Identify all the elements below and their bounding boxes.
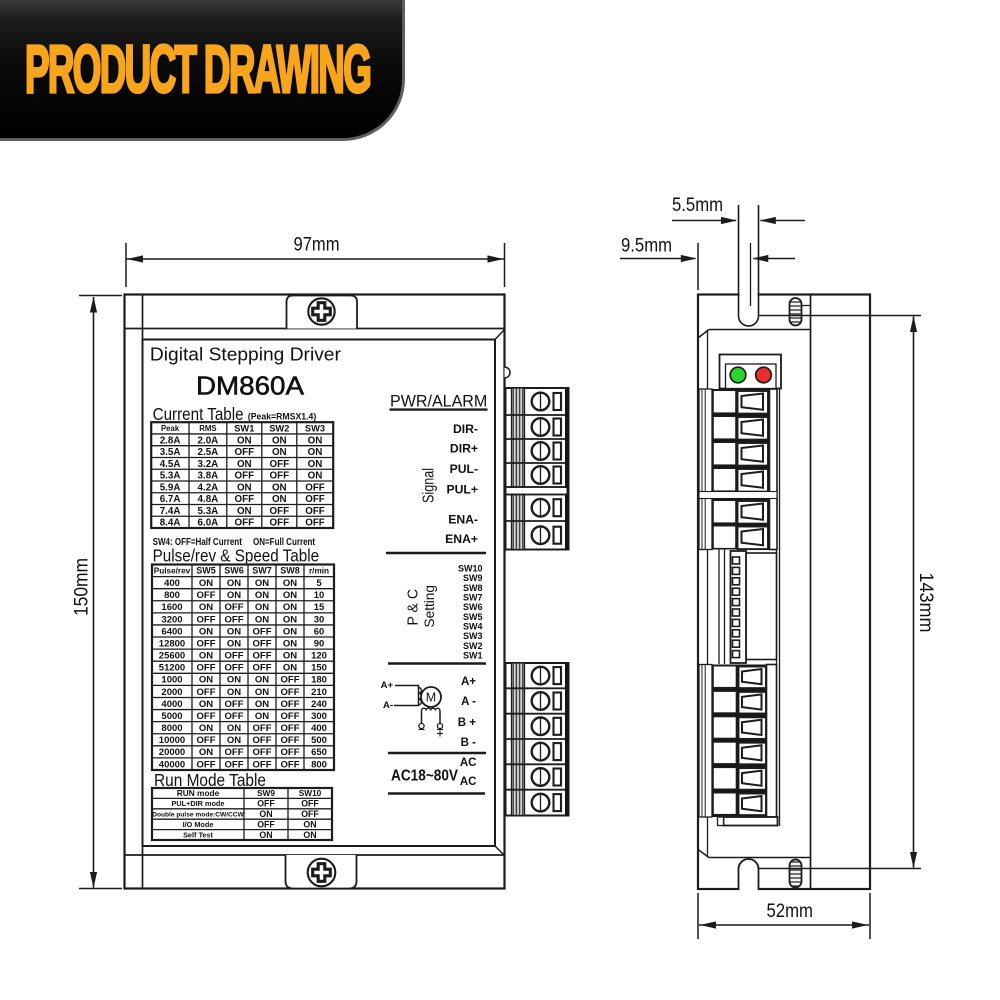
svg-text:143mm: 143mm: [915, 573, 936, 633]
svg-text:OFF: OFF: [197, 687, 216, 698]
svg-text:OFF: OFF: [305, 482, 325, 493]
svg-text:ON: ON: [227, 723, 241, 734]
svg-text:SW6: SW6: [224, 566, 244, 576]
svg-text:SW7: SW7: [252, 566, 272, 576]
svg-text:OFF: OFF: [281, 687, 300, 698]
svg-text:ON: ON: [255, 614, 269, 625]
svg-text:3.2A: 3.2A: [198, 459, 219, 470]
svg-text:Peak: Peak: [161, 424, 180, 433]
svg-text:OFF: OFF: [225, 651, 244, 662]
svg-text:Current Table: Current Table: [153, 404, 244, 424]
svg-text:Self Test: Self Test: [183, 830, 213, 839]
svg-text:SW1: SW1: [234, 423, 254, 433]
svg-text:ON: ON: [237, 506, 252, 517]
svg-text:DM860A: DM860A: [196, 370, 305, 400]
svg-text:ON: ON: [283, 602, 297, 613]
svg-text:DIR-: DIR-: [453, 422, 478, 436]
svg-text:SW10: SW10: [458, 564, 483, 574]
svg-text:ON: ON: [303, 820, 316, 830]
svg-text:OFF: OFF: [225, 711, 244, 722]
svg-text:ON: ON: [308, 459, 323, 470]
svg-text:SW8: SW8: [280, 566, 300, 576]
svg-text:OFF: OFF: [301, 809, 319, 819]
svg-text:PUL-: PUL-: [450, 462, 478, 476]
svg-text:SW5: SW5: [463, 612, 483, 622]
svg-text:8.4A: 8.4A: [160, 518, 181, 529]
svg-text:500: 500: [311, 735, 327, 746]
svg-text:ON: ON: [199, 578, 213, 589]
svg-text:OFF: OFF: [197, 663, 216, 674]
svg-text:2000: 2000: [161, 687, 182, 698]
svg-text:OFF: OFF: [305, 506, 325, 517]
svg-text:B +: B +: [458, 717, 477, 729]
svg-text:PUL+DIR mode: PUL+DIR mode: [172, 799, 225, 808]
svg-text:30: 30: [314, 614, 325, 625]
svg-text:800: 800: [311, 759, 327, 770]
svg-text:97mm: 97mm: [294, 235, 340, 256]
svg-text:OFF: OFF: [197, 638, 216, 649]
svg-text:ON: ON: [227, 638, 241, 649]
svg-text:650: 650: [311, 747, 327, 758]
svg-text:ON: ON: [308, 435, 323, 446]
svg-text:ON: ON: [237, 459, 252, 470]
svg-text:OFF: OFF: [281, 759, 300, 770]
svg-text:ON: ON: [283, 638, 297, 649]
svg-text:6.7A: 6.7A: [160, 494, 181, 505]
svg-text:OFF: OFF: [281, 735, 300, 746]
svg-text:ON: ON: [227, 735, 241, 746]
svg-text:5.5mm: 5.5mm: [672, 195, 723, 216]
svg-text:SW10: SW10: [299, 788, 322, 798]
svg-text:OFF: OFF: [253, 651, 272, 662]
svg-text:OFF: OFF: [197, 614, 216, 625]
svg-text:PWR/ALARM: PWR/ALARM: [390, 391, 487, 410]
svg-text:SW9: SW9: [257, 788, 275, 798]
svg-text:SW7: SW7: [463, 593, 483, 603]
svg-text:SW3: SW3: [305, 423, 325, 433]
svg-text:Pulse/rev: Pulse/rev: [154, 566, 191, 575]
svg-text:ON: ON: [255, 687, 269, 698]
svg-text:OFF: OFF: [270, 518, 290, 529]
svg-text:3200: 3200: [161, 614, 182, 625]
svg-text:ON: ON: [255, 590, 269, 601]
svg-text:B -: B -: [461, 737, 477, 749]
svg-text:OFF: OFF: [197, 735, 216, 746]
svg-text:SW5: SW5: [196, 566, 216, 576]
svg-text:ON: ON: [199, 626, 213, 637]
svg-text:ON: ON: [255, 699, 269, 710]
svg-text:ON: ON: [272, 447, 287, 458]
svg-text:2.5A: 2.5A: [198, 447, 219, 458]
svg-text:OFF: OFF: [305, 494, 325, 505]
svg-text:5.3A: 5.3A: [198, 506, 219, 517]
svg-text:4.8A: 4.8A: [198, 494, 219, 505]
svg-text:SW1: SW1: [463, 651, 483, 661]
svg-text:20000: 20000: [159, 747, 185, 758]
svg-text:Digital Stepping Driver: Digital Stepping Driver: [150, 343, 341, 364]
svg-text:ON: ON: [199, 602, 213, 613]
svg-text:OFF: OFF: [281, 675, 300, 686]
svg-text:A-: A-: [383, 700, 393, 711]
svg-text:(Peak=RMSX1.4): (Peak=RMSX1.4): [248, 412, 316, 423]
svg-text:ON: ON: [283, 663, 297, 674]
svg-text:ON: ON: [283, 626, 297, 637]
svg-text:OFF: OFF: [225, 663, 244, 674]
svg-text:A+: A+: [461, 676, 476, 688]
svg-text:10000: 10000: [159, 735, 185, 746]
svg-text:OFF: OFF: [225, 602, 244, 613]
svg-text:OFF: OFF: [197, 759, 216, 770]
svg-text:OFF: OFF: [257, 820, 275, 830]
svg-text:ON: ON: [227, 578, 241, 589]
svg-text:120: 120: [311, 651, 327, 662]
svg-text:5.9A: 5.9A: [160, 482, 181, 493]
svg-text:5.3A: 5.3A: [160, 471, 181, 482]
svg-text:A -: A -: [461, 696, 476, 708]
svg-text:OFF: OFF: [253, 626, 272, 637]
svg-text:40000: 40000: [159, 759, 185, 770]
svg-text:ON: ON: [283, 651, 297, 662]
svg-text:ON: ON: [199, 747, 213, 758]
svg-text:ON: ON: [199, 675, 213, 686]
svg-text:SW2: SW2: [269, 423, 289, 433]
svg-text:ON: ON: [255, 675, 269, 686]
svg-text:7.4A: 7.4A: [160, 506, 181, 517]
svg-text:OFF: OFF: [235, 494, 255, 505]
svg-text:10: 10: [314, 590, 325, 601]
svg-text:ON: ON: [199, 699, 213, 710]
svg-text:ON: ON: [255, 711, 269, 722]
svg-text:9.5mm: 9.5mm: [621, 236, 672, 257]
svg-text:2.8A: 2.8A: [160, 435, 181, 446]
svg-text:ON: ON: [227, 626, 241, 637]
svg-text:OFF: OFF: [301, 799, 319, 809]
svg-text:180: 180: [311, 675, 327, 686]
svg-text:OFF: OFF: [235, 447, 255, 458]
svg-text:OFF: OFF: [305, 518, 325, 529]
svg-text:6400: 6400: [161, 626, 182, 637]
svg-text:OFF: OFF: [253, 735, 272, 746]
svg-text:OFF: OFF: [253, 723, 272, 734]
svg-text:OFF: OFF: [225, 747, 244, 758]
svg-text:ON: ON: [237, 482, 252, 493]
svg-text:300: 300: [311, 711, 327, 722]
svg-text:OFF: OFF: [253, 663, 272, 674]
svg-text:210: 210: [311, 687, 327, 698]
svg-text:OFF: OFF: [270, 471, 290, 482]
svg-text:ON: ON: [272, 482, 287, 493]
svg-text:12800: 12800: [159, 638, 185, 649]
svg-text:800: 800: [164, 590, 180, 601]
svg-text:I/O Mode: I/O Mode: [183, 820, 214, 829]
svg-text:52mm: 52mm: [767, 901, 814, 922]
svg-text:240: 240: [311, 699, 327, 710]
svg-text:DIR+: DIR+: [450, 442, 478, 456]
svg-text:ON: ON: [308, 471, 323, 482]
svg-text:ON: ON: [283, 614, 297, 625]
svg-text:OFF: OFF: [270, 459, 290, 470]
svg-text:AC: AC: [460, 776, 477, 788]
svg-text:150: 150: [311, 663, 327, 674]
svg-text:OFF: OFF: [281, 711, 300, 722]
svg-text:ON: ON: [227, 687, 241, 698]
svg-text:SW3: SW3: [463, 631, 483, 641]
svg-text:Signal: Signal: [421, 468, 438, 503]
svg-text:ON: ON: [303, 830, 316, 840]
svg-text:4000: 4000: [161, 699, 182, 710]
svg-text:15: 15: [314, 602, 325, 613]
svg-text:OFF: OFF: [281, 723, 300, 734]
svg-text:Setting: Setting: [421, 585, 437, 628]
svg-text:25600: 25600: [159, 651, 185, 662]
svg-text:SW2: SW2: [463, 641, 483, 651]
svg-text:PUL+: PUL+: [447, 483, 479, 497]
svg-text:1000: 1000: [161, 675, 182, 686]
svg-text:ON: ON: [283, 590, 297, 601]
svg-text:OFF: OFF: [253, 638, 272, 649]
svg-text:P & C: P & C: [405, 589, 422, 626]
svg-text:ON: ON: [255, 578, 269, 589]
svg-text:Double pulse mode:CW/CCW: Double pulse mode:CW/CCW: [152, 811, 244, 818]
svg-text:OFF: OFF: [253, 759, 272, 770]
svg-text:ON: ON: [308, 447, 323, 458]
svg-text:51200: 51200: [159, 663, 185, 674]
svg-text:5: 5: [316, 578, 322, 589]
svg-text:ON: ON: [283, 578, 297, 589]
svg-text:r/min: r/min: [309, 566, 329, 575]
svg-text:3.5A: 3.5A: [160, 447, 181, 458]
svg-text:SW9: SW9: [463, 573, 483, 583]
svg-text:OFF: OFF: [253, 747, 272, 758]
svg-text:RUN mode: RUN mode: [177, 788, 220, 798]
svg-text:3.8A: 3.8A: [198, 471, 219, 482]
svg-text:OFF: OFF: [281, 699, 300, 710]
svg-text:2.0A: 2.0A: [198, 435, 219, 446]
svg-text:SW4: SW4: [463, 622, 483, 632]
svg-text:90: 90: [314, 638, 325, 649]
svg-text:A+: A+: [381, 680, 394, 691]
svg-text:8000: 8000: [161, 723, 182, 734]
svg-text:150mm: 150mm: [72, 558, 93, 616]
svg-text:4.5A: 4.5A: [160, 459, 181, 470]
svg-text:OFF: OFF: [281, 747, 300, 758]
svg-text:SW8: SW8: [463, 583, 483, 593]
svg-text:OFF: OFF: [235, 518, 255, 529]
svg-text:4.2A: 4.2A: [198, 482, 219, 493]
svg-text:ON: ON: [272, 494, 287, 505]
svg-text:OFF: OFF: [225, 759, 244, 770]
svg-text:M: M: [426, 691, 436, 705]
svg-text:OFF: OFF: [225, 699, 244, 710]
svg-text:ON: ON: [255, 602, 269, 613]
svg-text:AC18~80V: AC18~80V: [391, 768, 459, 785]
svg-text:RMS: RMS: [199, 424, 216, 433]
svg-text:5000: 5000: [161, 711, 182, 722]
svg-text:60: 60: [314, 626, 325, 637]
svg-text:OFF: OFF: [225, 614, 244, 625]
svg-text:ON: ON: [272, 435, 287, 446]
svg-text:ON: ON: [199, 651, 213, 662]
svg-text:OFF: OFF: [235, 471, 255, 482]
svg-text:1600: 1600: [161, 602, 182, 613]
svg-text:ON: ON: [227, 590, 241, 601]
svg-text:OFF: OFF: [197, 590, 216, 601]
svg-text:400: 400: [311, 723, 327, 734]
svg-text:400: 400: [164, 578, 180, 589]
svg-text:SW6: SW6: [463, 602, 483, 612]
svg-text:6.0A: 6.0A: [198, 518, 219, 529]
svg-text:OFF: OFF: [197, 711, 216, 722]
svg-text:OFF: OFF: [270, 506, 290, 517]
svg-text:ENA+: ENA+: [445, 532, 478, 546]
svg-text:ON: ON: [259, 809, 272, 819]
svg-text:OFF: OFF: [257, 799, 275, 809]
svg-text:ON: ON: [259, 830, 272, 840]
svg-text:ENA-: ENA-: [448, 513, 478, 527]
svg-text:ON: ON: [199, 723, 213, 734]
svg-text:ON: ON: [237, 435, 252, 446]
svg-text:Pulse/rev & Speed Table: Pulse/rev & Speed Table: [153, 546, 320, 566]
svg-text:AC: AC: [460, 757, 477, 769]
svg-text:ON: ON: [227, 675, 241, 686]
